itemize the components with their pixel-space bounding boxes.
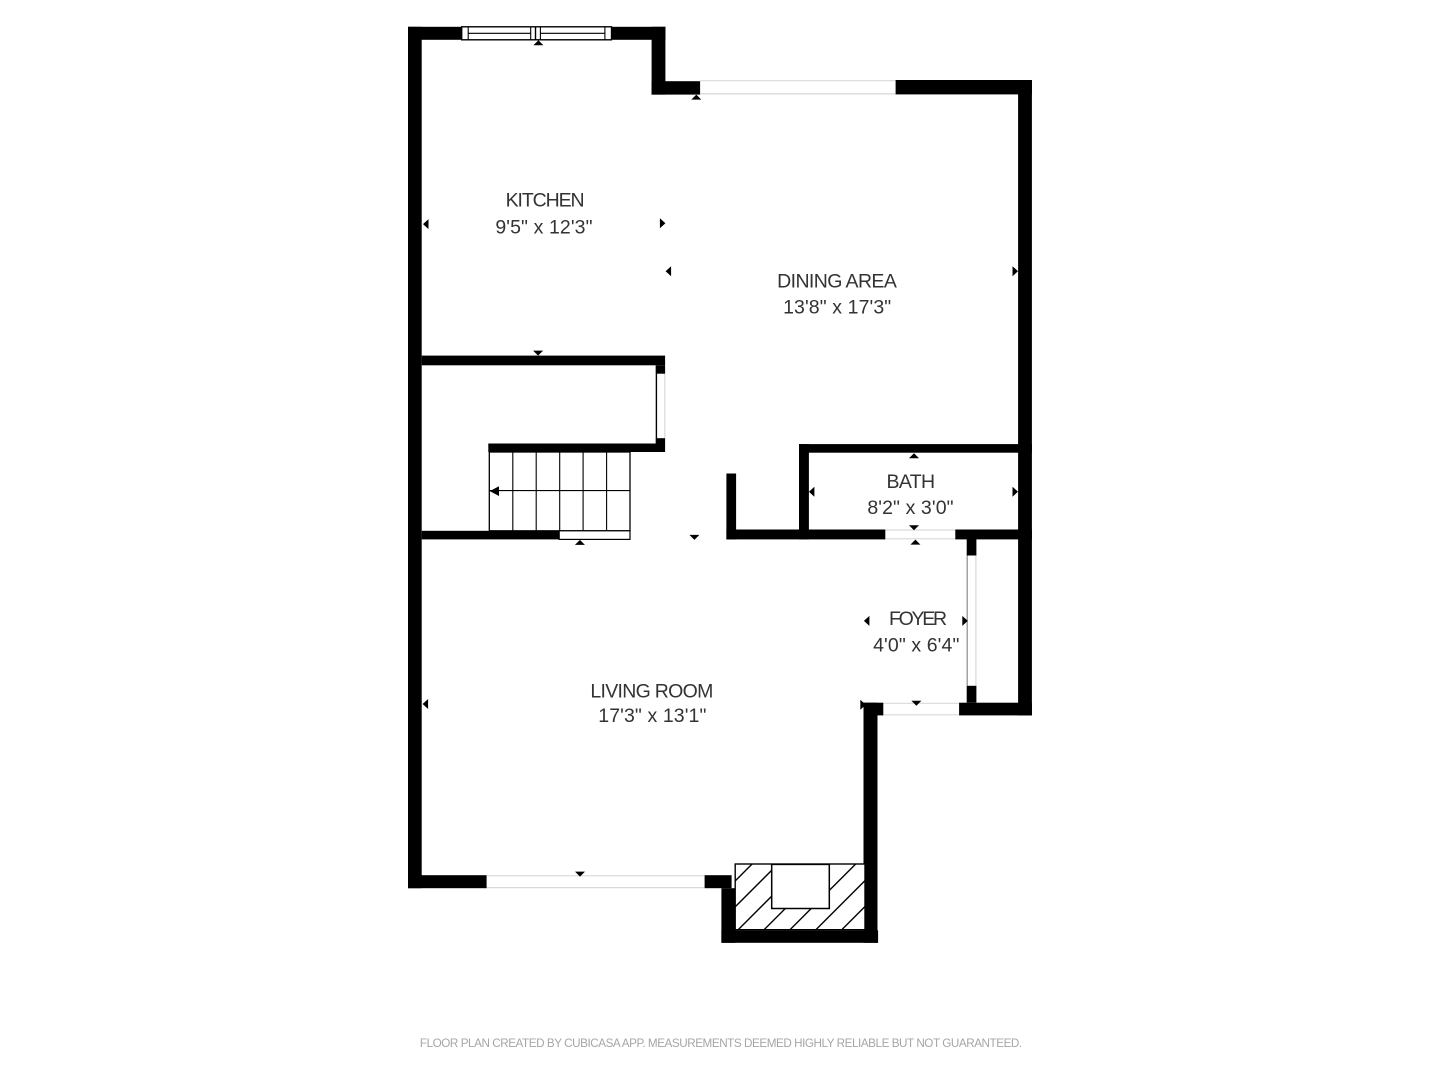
- svg-text:13'8" x 17'3": 13'8" x 17'3": [783, 297, 891, 319]
- svg-text:4'0" x 6'4": 4'0" x 6'4": [873, 634, 959, 656]
- svg-text:DINING AREA: DINING AREA: [777, 271, 897, 293]
- svg-text:KITCHEN: KITCHEN: [506, 190, 584, 212]
- svg-text:9'5" x 12'3": 9'5" x 12'3": [495, 216, 592, 238]
- svg-text:BATH: BATH: [887, 471, 935, 493]
- svg-text:FLOOR PLAN CREATED BY CUBICASA: FLOOR PLAN CREATED BY CUBICASA APP. MEAS…: [420, 1037, 1022, 1050]
- svg-text:17'3" x 13'1": 17'3" x 13'1": [598, 705, 706, 727]
- svg-text:FOYER: FOYER: [889, 608, 947, 630]
- svg-text:LIVING ROOM: LIVING ROOM: [590, 681, 712, 703]
- svg-text:8'2" x 3'0": 8'2" x 3'0": [867, 497, 953, 519]
